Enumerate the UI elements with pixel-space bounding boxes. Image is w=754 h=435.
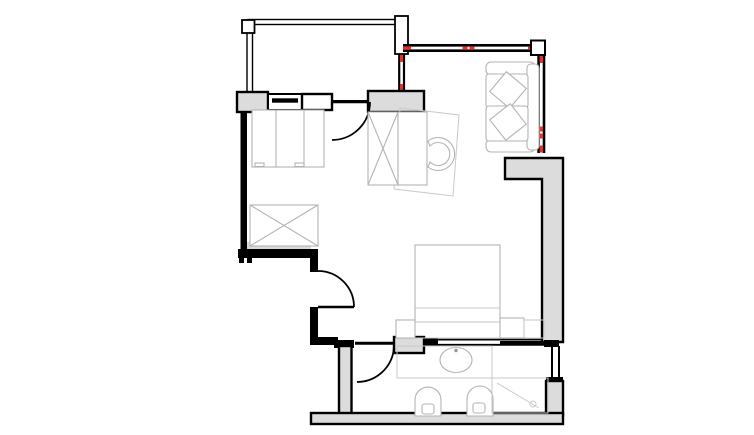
wall-segment xyxy=(237,92,268,112)
swing-door-arc xyxy=(357,346,394,382)
window-marker-dash xyxy=(540,127,543,132)
nightstand xyxy=(500,318,524,338)
wall-segment xyxy=(368,91,424,112)
sliding-door xyxy=(424,340,548,345)
corner-post xyxy=(531,41,545,56)
entry-door xyxy=(318,271,354,307)
desk-chair xyxy=(428,138,455,171)
window-box xyxy=(302,94,332,110)
window-marker-dash xyxy=(400,55,403,62)
door-jamb xyxy=(310,307,318,330)
sofa xyxy=(486,62,539,152)
wardrobe-x-symbol xyxy=(250,205,318,246)
floor-plan-canvas xyxy=(0,0,754,435)
wall-segment xyxy=(238,249,318,258)
window-marker-dash xyxy=(403,46,411,49)
sofa-back xyxy=(527,64,539,150)
wall-tick xyxy=(247,258,252,263)
wall-segment xyxy=(394,337,424,353)
window-marker-dash xyxy=(540,146,543,153)
door-jamb xyxy=(310,256,318,272)
bathroom-door xyxy=(355,343,394,382)
wall-tick xyxy=(239,258,244,263)
window-wall-bathroom xyxy=(544,340,563,384)
window-marker-dash xyxy=(540,56,543,63)
window-wall-balcony-right xyxy=(399,54,404,92)
desk xyxy=(368,108,459,196)
bed xyxy=(415,245,500,338)
window-sash-bar xyxy=(272,98,298,102)
wall-right-L xyxy=(505,158,563,342)
window-marker-dash xyxy=(540,134,543,139)
window-marker-dash xyxy=(463,46,468,49)
toilet xyxy=(415,387,441,416)
bathroom-pier xyxy=(334,340,354,416)
headboard xyxy=(415,322,500,338)
corner-post xyxy=(242,20,255,33)
swing-door-arc xyxy=(318,271,354,307)
dresser xyxy=(252,110,324,167)
desk-cabinet xyxy=(398,112,427,185)
window-wall-top xyxy=(403,45,537,50)
bidet xyxy=(467,386,493,416)
swing-door-arc xyxy=(332,102,370,140)
faucet xyxy=(454,349,458,353)
floor-plan-drawing xyxy=(0,0,754,435)
wall-top-row xyxy=(237,91,424,112)
nightstand xyxy=(396,320,415,338)
wall-segment xyxy=(546,381,563,415)
sliding-door-panel xyxy=(500,341,547,345)
shower-enclosure xyxy=(492,378,548,413)
balcony-railing xyxy=(242,16,408,93)
window-marker-dash xyxy=(470,46,475,49)
